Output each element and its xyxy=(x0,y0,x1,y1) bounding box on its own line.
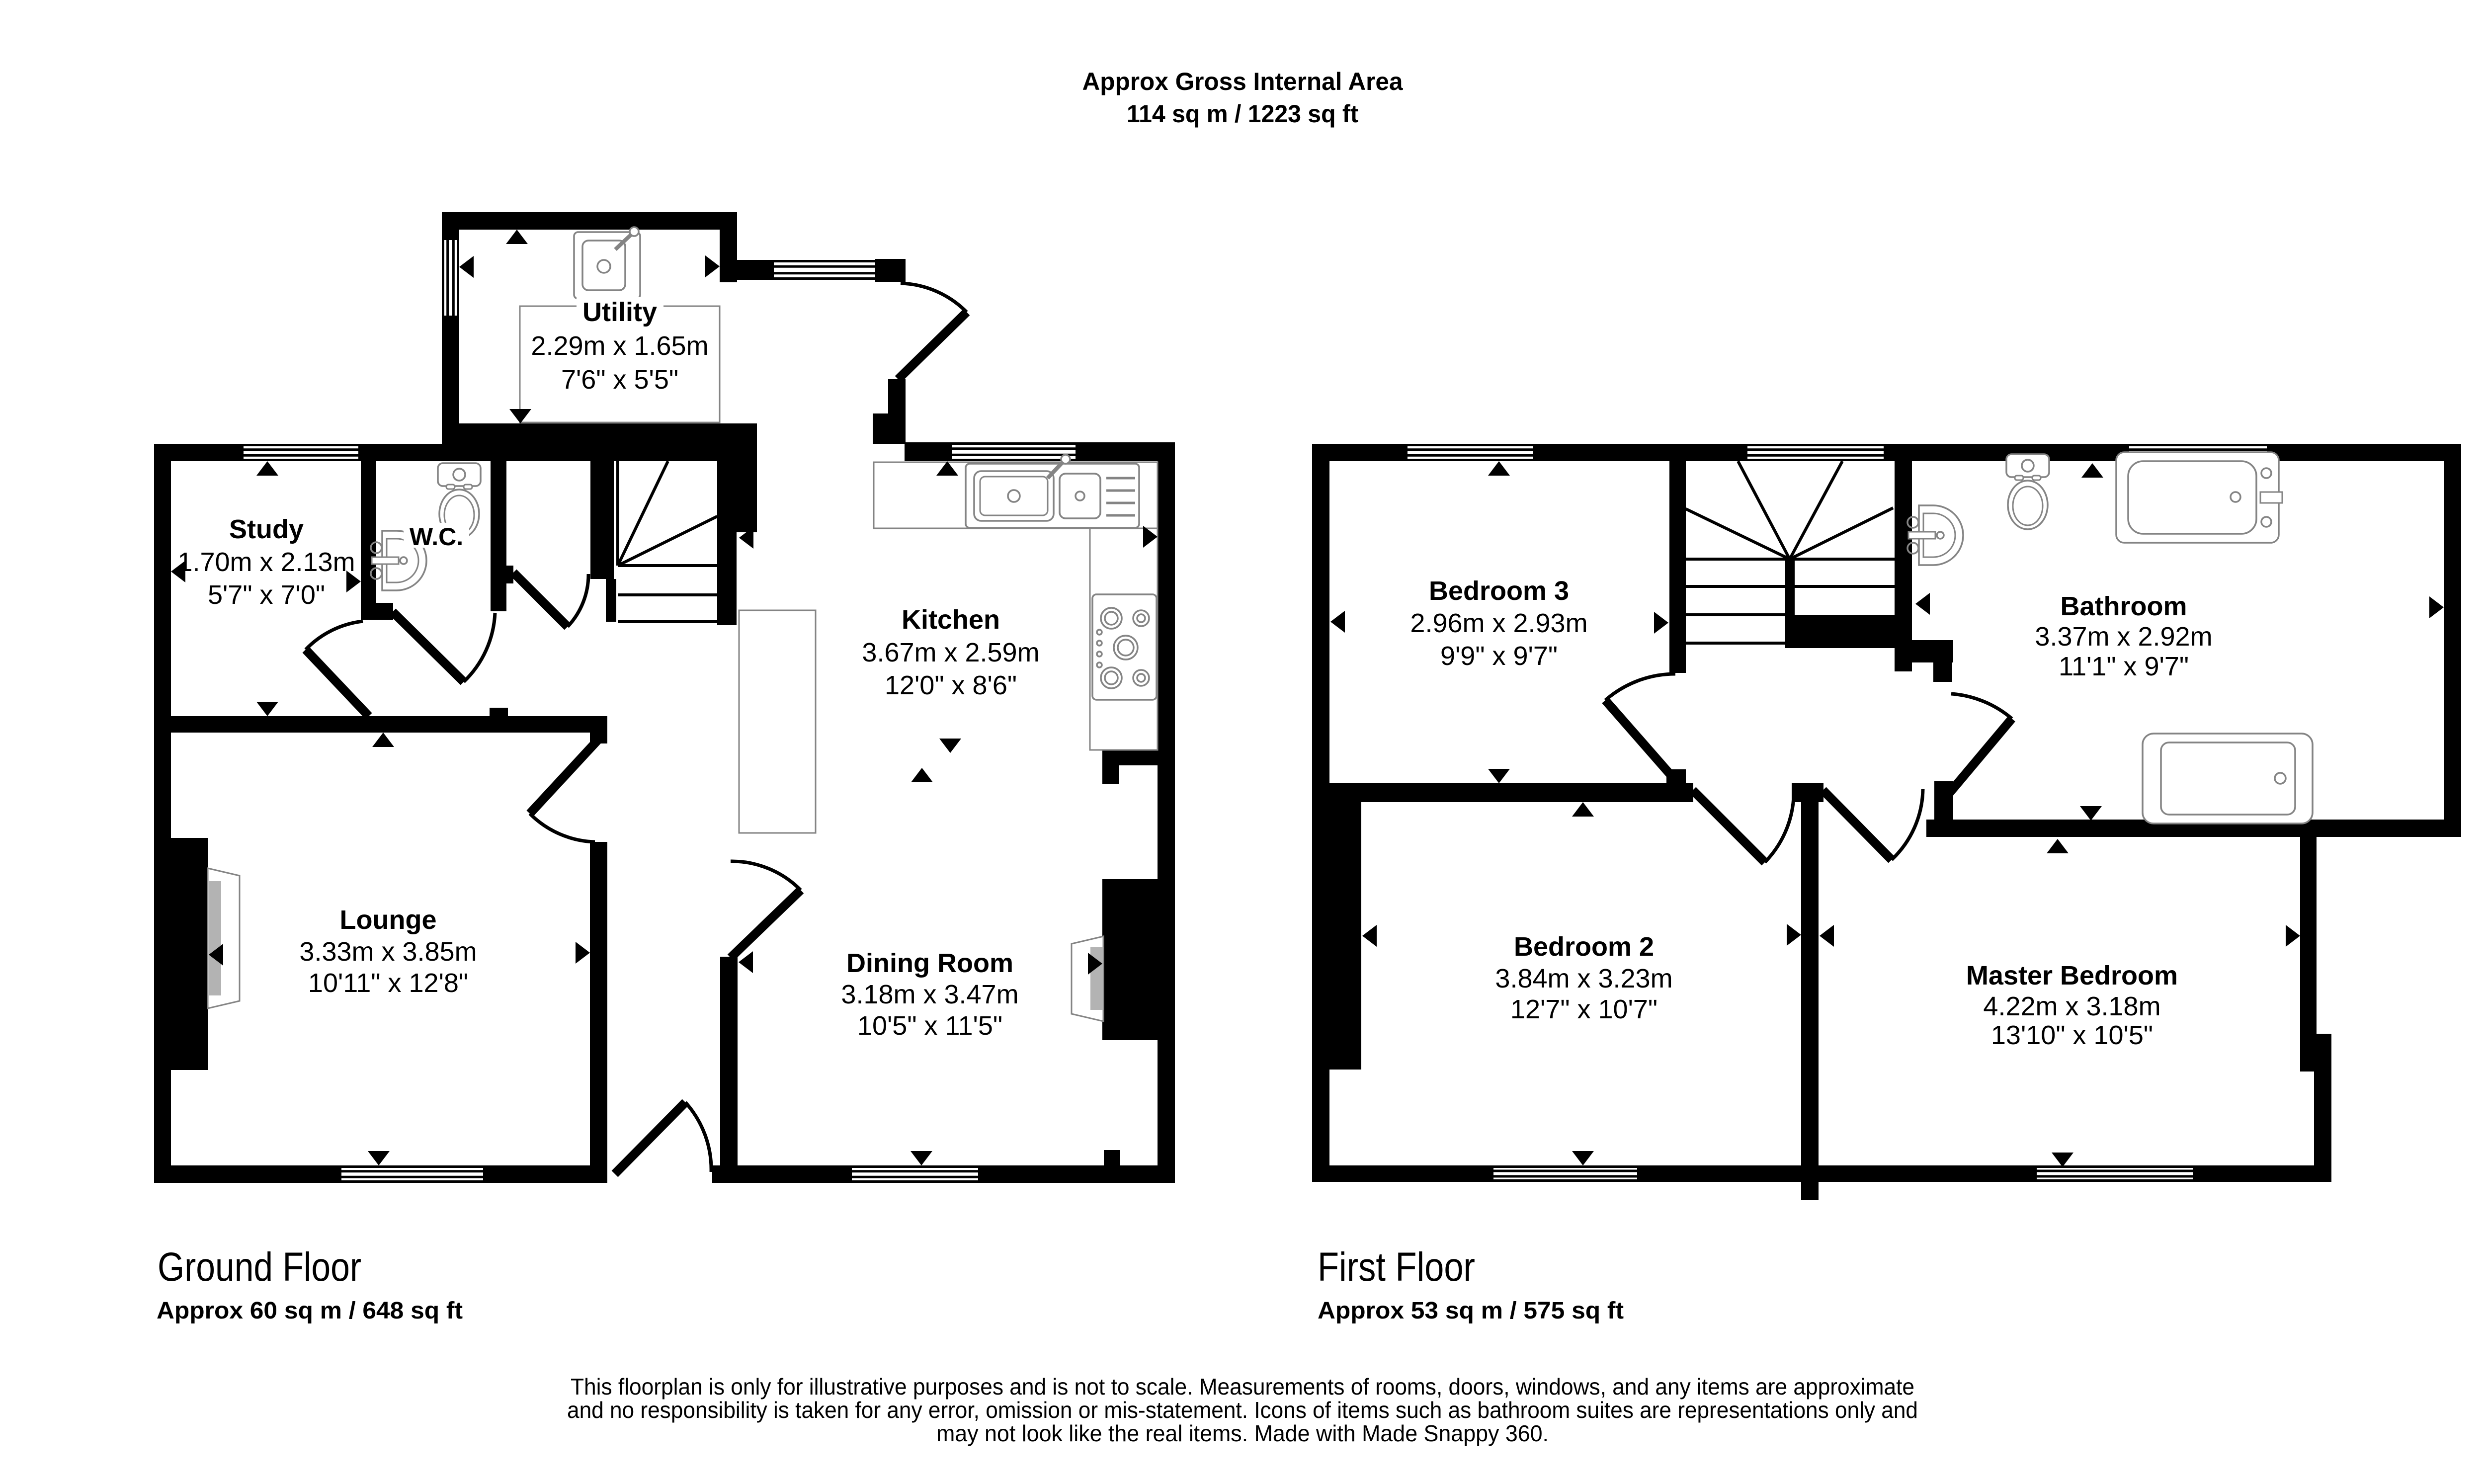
svg-text:Approx 53 sq m / 575 sq ft: Approx 53 sq m / 575 sq ft xyxy=(1318,1298,1624,1324)
svg-text:3.67m x 2.59m: 3.67m x 2.59m xyxy=(862,638,1039,667)
svg-text:Bedroom 3: Bedroom 3 xyxy=(1429,576,1569,606)
svg-text:5'7" x 7'0": 5'7" x 7'0" xyxy=(208,580,325,610)
svg-text:Dining Room: Dining Room xyxy=(846,948,1013,978)
svg-text:Study: Study xyxy=(229,514,304,544)
svg-text:Ground Floor: Ground Floor xyxy=(158,1244,361,1290)
svg-text:3.33m x 3.85m: 3.33m x 3.85m xyxy=(299,937,477,967)
svg-text:12'0" x 8'6": 12'0" x 8'6" xyxy=(885,670,1017,700)
svg-text:Master Bedroom: Master Bedroom xyxy=(1966,961,2178,990)
svg-text:Lounge: Lounge xyxy=(340,905,437,935)
svg-text:1.70m x 2.13m: 1.70m x 2.13m xyxy=(177,547,355,577)
svg-text:Bathroom: Bathroom xyxy=(2061,591,2187,621)
svg-text:2.96m x 2.93m: 2.96m x 2.93m xyxy=(1410,608,1587,638)
svg-text:Approx 60 sq m / 648 sq ft: Approx 60 sq m / 648 sq ft xyxy=(157,1298,463,1324)
svg-text:Utility: Utility xyxy=(582,297,657,327)
svg-text:3.84m x 3.23m: 3.84m x 3.23m xyxy=(1495,964,1672,993)
svg-text:2.29m x 1.65m: 2.29m x 1.65m xyxy=(531,331,708,361)
svg-text:and no responsibility is taken: and no responsibility is taken for any e… xyxy=(567,1397,1918,1423)
svg-text:3.37m x 2.92m: 3.37m x 2.92m xyxy=(2035,622,2212,652)
svg-text:3.18m x 3.47m: 3.18m x 3.47m xyxy=(841,980,1018,1009)
svg-text:This floorplan is only for ill: This floorplan is only for illustrative … xyxy=(571,1374,1914,1400)
svg-text:may not look like the real ite: may not look like the real items. Made w… xyxy=(936,1420,1549,1446)
svg-text:W.C.: W.C. xyxy=(410,523,463,551)
svg-text:Bedroom 2: Bedroom 2 xyxy=(1514,932,1654,962)
svg-text:114 sq m / 1223 sq ft: 114 sq m / 1223 sq ft xyxy=(1127,100,1358,128)
svg-text:9'9" x 9'7": 9'9" x 9'7" xyxy=(1440,641,1558,671)
svg-text:Kitchen: Kitchen xyxy=(902,605,1000,635)
svg-text:Approx Gross Internal Area: Approx Gross Internal Area xyxy=(1082,68,1404,95)
svg-text:7'6" x 5'5": 7'6" x 5'5" xyxy=(561,365,678,395)
svg-text:4.22m x 3.18m: 4.22m x 3.18m xyxy=(1983,991,2160,1021)
svg-text:First Floor: First Floor xyxy=(1318,1244,1475,1290)
svg-text:10'11" x 12'8": 10'11" x 12'8" xyxy=(308,968,468,998)
svg-text:11'1" x 9'7": 11'1" x 9'7" xyxy=(2059,652,2189,681)
svg-text:13'10" x 10'5": 13'10" x 10'5" xyxy=(1991,1020,2153,1050)
svg-text:10'5" x 11'5": 10'5" x 11'5" xyxy=(857,1011,1002,1041)
svg-text:12'7" x 10'7": 12'7" x 10'7" xyxy=(1510,994,1657,1024)
